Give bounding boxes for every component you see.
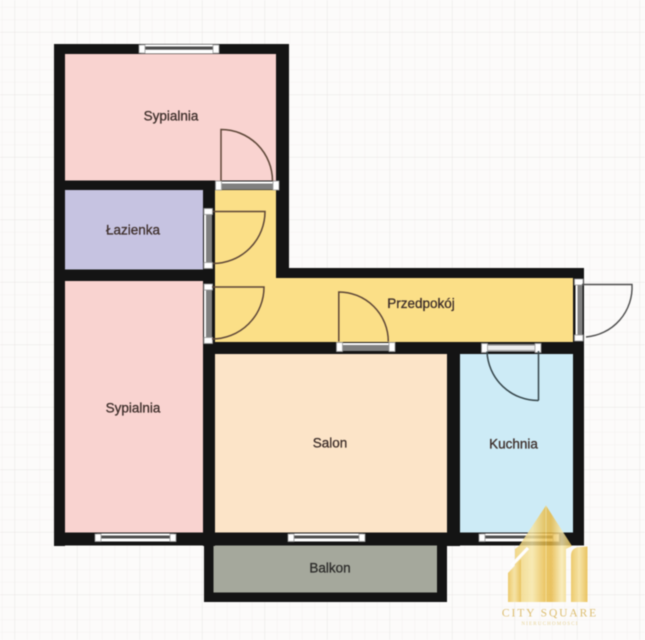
svg-text:Sypialnia: Sypialnia [144,109,199,124]
svg-text:CITY SQUARE: CITY SQUARE [502,608,598,620]
svg-text:Kuchnia: Kuchnia [489,437,538,452]
svg-text:NIERUCHOMOŚCI: NIERUCHOMOŚCI [521,621,578,627]
svg-text:Balkon: Balkon [309,561,350,576]
svg-text:Salon: Salon [313,436,348,451]
svg-text:Łazienka: Łazienka [106,223,161,238]
svg-text:Przedpokój: Przedpokój [387,296,455,311]
svg-text:Sypialnia: Sypialnia [106,401,161,416]
